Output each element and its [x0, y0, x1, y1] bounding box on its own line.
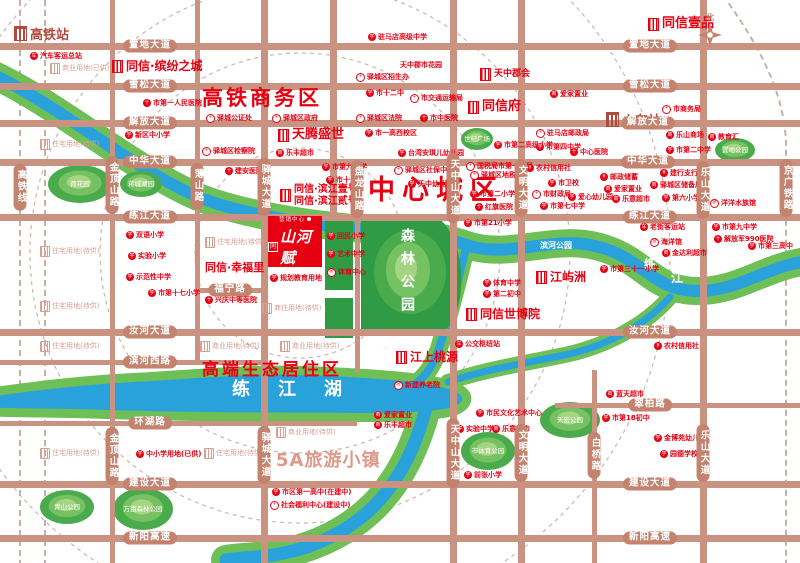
landmark-label: 江上桃源	[396, 351, 458, 365]
poi-label: +市商务局	[662, 105, 701, 114]
shop-icon: 商	[666, 131, 674, 139]
poi-label: +驿城区检察院	[202, 147, 255, 156]
road-capsule: 天中山大道	[447, 418, 460, 488]
school-icon: 学	[712, 223, 720, 231]
road-capsule: 解放大道	[123, 117, 177, 130]
road-capsule: 薄山路	[191, 163, 204, 210]
poi-label: 十市中医院	[420, 114, 458, 122]
poi-label: +驿城区法院	[356, 114, 402, 123]
school-icon: 学	[568, 193, 576, 201]
poi-label: 学市第三高中	[748, 242, 793, 250]
poi-label: +市财政局	[532, 190, 571, 199]
shop-icon: 商	[550, 90, 558, 98]
landmark-label: 同信·缤纷之城	[112, 60, 203, 74]
attraction-icon: 游	[394, 381, 403, 390]
poi-label: 商住用地(待供)	[262, 303, 321, 314]
poi-label: 住宅用地(待供)	[205, 237, 264, 248]
school-icon: 学	[654, 434, 662, 442]
region-label: 河	[711, 259, 723, 271]
poi-label: 学回民小学	[327, 232, 365, 240]
road-capsule: 建设大道	[623, 478, 677, 491]
poi-label: 学规划教育用地	[270, 274, 322, 282]
poi-label: 商蓝天超市	[606, 390, 644, 398]
land-parcel-icon	[262, 303, 272, 314]
road-capsule: 置地大道	[123, 40, 177, 53]
poi-label: 学市第21小学	[464, 219, 512, 227]
poi-label: 商业用地(待供)	[280, 341, 339, 352]
poi-label: 车汽车客运总站	[30, 52, 82, 60]
road-capsule: 汝河大道	[623, 326, 677, 339]
school-icon: 学	[366, 89, 374, 97]
poi-label: 学艺术中学	[327, 250, 365, 258]
road-capsule: 中华大道	[123, 156, 177, 169]
poi-label: 学中小学用地(已供)	[136, 450, 201, 458]
poi-label: 商乐丰超市	[374, 421, 412, 429]
map-label-layer: 荷花园蒋城湖园世纪广场置地公园天宏公园市体育公园青山公园万亩森林公园置地大道置地…	[0, 0, 800, 563]
government-icon: +	[662, 105, 671, 114]
poi-label: 商金达利超市	[662, 249, 707, 257]
poi-label: +驿城区政府	[272, 114, 318, 123]
school-icon: 学	[483, 290, 491, 298]
poi-label: ¥农村信用社	[654, 342, 699, 350]
region-label: 滨河公园	[540, 242, 572, 250]
poi-label: 车公交枢纽站	[455, 340, 500, 348]
poi-label: 十中心医院	[570, 148, 608, 156]
school-icon: 学	[368, 33, 376, 41]
landmark-label: 同信府	[468, 100, 521, 115]
road-capsule: 乐山大道	[697, 161, 710, 219]
landmark-label: 同信·幸福里	[205, 262, 264, 275]
poi-label: +驿城公证处	[206, 114, 252, 123]
road-capsule: 解放大道	[621, 117, 675, 130]
building-icon	[648, 18, 659, 31]
road-capsule: 环湖路	[128, 417, 172, 430]
road	[0, 214, 800, 221]
school-icon: 学	[470, 190, 478, 198]
school-icon: 学	[660, 450, 668, 458]
government-icon: +	[206, 114, 215, 123]
land-parcel-icon	[40, 301, 50, 312]
shop-icon: 商	[650, 181, 658, 189]
government-icon: +	[356, 73, 365, 82]
road-capsule: 新阳高速	[123, 532, 177, 545]
school-icon: 学	[536, 143, 544, 151]
school-icon: 学	[365, 129, 373, 137]
park-label: 万亩森林公园	[124, 506, 163, 513]
road-capsule: 中华大道	[621, 156, 675, 169]
school-icon: 学	[326, 176, 334, 184]
school-icon: 学	[464, 471, 472, 479]
poi-label: 学市第十七小学	[148, 289, 200, 297]
school-icon: 学	[327, 232, 335, 240]
railway-capsule: 京广铁路	[780, 159, 793, 217]
government-icon: +	[410, 94, 419, 103]
poi-label: 学市十二中	[366, 89, 404, 97]
poi-label: 商驿城区储备局	[650, 181, 702, 189]
school-icon: 学	[494, 141, 502, 149]
government-icon: +	[356, 114, 365, 123]
shop-icon: 商	[374, 411, 382, 419]
school-icon: 学	[540, 202, 548, 210]
road-capsule: 盘龙山路	[351, 160, 364, 218]
region-label: 森林公园	[400, 228, 414, 320]
government-icon: +	[202, 147, 211, 156]
park-label: 市体育公园	[472, 448, 505, 455]
poi-label: 商乐丰超市	[276, 149, 314, 157]
road	[0, 535, 800, 542]
road	[0, 421, 357, 426]
poi-label: 学市第七中学	[540, 202, 585, 210]
poi-label: 学市第九中学	[712, 223, 757, 231]
brand-seal-icon: 同	[268, 242, 278, 252]
poi-label: 学市民文化艺术中心	[476, 409, 542, 417]
poi-label: 学市区第一高中(在建中)	[272, 488, 351, 496]
road-capsule: 金顶山路	[106, 156, 119, 214]
bus-icon: 车	[30, 52, 38, 60]
school-icon: 学	[148, 289, 156, 297]
poi-label: +驿城区招生办	[356, 73, 409, 82]
building-icon	[396, 351, 407, 364]
school-icon: 学	[272, 488, 280, 496]
road-capsule: 乐山大道	[697, 424, 710, 482]
government-icon: +	[270, 501, 279, 510]
poi-label: 商业用地(已供)	[50, 63, 109, 74]
school-icon: 学	[126, 273, 134, 281]
station-icon	[606, 112, 619, 127]
poi-label: 游新建养老院	[394, 381, 440, 390]
park-label: 荷花园	[70, 181, 90, 188]
school-icon: 学	[327, 250, 335, 258]
school-icon: 学	[483, 279, 491, 287]
brand-logo: 山河赋	[280, 226, 322, 268]
poi-label: 商爱家置业	[604, 185, 642, 193]
poi-label: 住宅用地(待供)	[204, 448, 263, 459]
building-icon	[536, 271, 547, 284]
poi-label: 商教育汇	[708, 133, 739, 141]
poi-label: 住宅用地(待供)	[40, 139, 99, 150]
shop-icon: 商	[276, 149, 284, 157]
school-icon: 学	[548, 179, 556, 187]
shop-icon: 商	[662, 249, 670, 257]
park-label: 世纪广场	[464, 136, 490, 143]
poi-label: 十兴庆中等医院	[205, 296, 257, 304]
building-icon	[480, 68, 491, 81]
road-capsule: 新阳高速	[623, 532, 677, 545]
building-icon	[278, 129, 289, 142]
road-capsule: 建设大道	[123, 478, 177, 491]
hospital-icon: 十	[225, 167, 233, 175]
hospital-icon: 十	[420, 114, 428, 122]
shop-icon: 商	[492, 425, 500, 433]
bus-icon: 车	[640, 223, 648, 231]
road	[0, 481, 800, 488]
poi-label: 商业用地(待供)	[276, 427, 335, 438]
land-parcel-icon	[205, 237, 215, 248]
attraction-icon: 游	[327, 268, 336, 277]
poi-label: 学市第18初中	[602, 414, 650, 422]
school-icon: 学	[662, 194, 670, 202]
land-parcel-icon	[204, 448, 214, 459]
landmark-label: 天中郡会	[480, 68, 530, 81]
road-capsule: 雪松大道	[623, 80, 677, 93]
road	[0, 43, 800, 50]
road-capsule: 置地大道	[623, 40, 677, 53]
shop-icon: 商	[708, 133, 716, 141]
land-parcel-icon	[200, 341, 210, 352]
road-capsule: 白桥路	[588, 432, 601, 479]
poi-label: 车老街客运站	[640, 223, 685, 231]
north-label: 北	[706, 12, 714, 23]
poi-label: 商乐意超市	[612, 195, 650, 203]
road-capsule: 翠柏路	[628, 399, 672, 412]
poi-label: 住宅用地(待供)	[40, 448, 99, 459]
poi-label: +驻马店邮政局	[536, 129, 589, 138]
government-icon: +	[272, 114, 281, 123]
marketing-center-label: 营销中心	[279, 215, 311, 223]
school-icon: 学	[128, 252, 136, 260]
poi-label: 学新区中小学	[125, 131, 170, 139]
poi-label: 学市一高西校区	[365, 129, 417, 137]
compass: 北	[698, 12, 722, 47]
region-label: 高铁商务区	[202, 88, 322, 109]
project-brand-block: 营销中心 同 山河赋	[268, 216, 322, 267]
government-icon: +	[532, 190, 541, 199]
road	[0, 329, 800, 336]
school-icon: 学	[125, 131, 133, 139]
road-capsule: 金顶山路	[106, 427, 119, 485]
bank-icon: ¥	[654, 342, 662, 350]
school-icon: 学	[270, 274, 278, 282]
bus-icon: 车	[455, 340, 463, 348]
station-label: 高铁站	[14, 24, 69, 43]
map-canvas: 荷花园蒋城湖园世纪广场置地公园天宏公园市体育公园青山公园万亩森林公园置地大道置地…	[0, 0, 800, 563]
park-label: 青山公园	[54, 504, 80, 511]
building-icon	[280, 189, 291, 202]
poi-label: 天中郡市花园	[400, 62, 442, 69]
hospital-icon: 十	[570, 148, 578, 156]
railway-capsule: 高铁线	[14, 164, 27, 211]
park-label: 蒋城湖园	[128, 181, 154, 188]
poi-label: 游体育中心	[327, 268, 366, 277]
poi-label: +市交通运输局	[410, 94, 463, 103]
landmark-label: 同信·滨江壹号 同信·滨江贰号	[280, 184, 358, 207]
station-icon	[14, 26, 27, 41]
road-capsule: 汝河大道	[123, 326, 177, 339]
park-label: 置地公园	[722, 147, 748, 154]
poi-label: 学实验中学	[456, 425, 494, 433]
government-icon: +	[394, 166, 403, 175]
school-icon: 学	[126, 231, 134, 239]
poi-label: ¥邮政储蓄	[600, 173, 638, 181]
region-label: 江	[671, 272, 683, 284]
poi-label: 学市第三十一小学	[600, 265, 659, 273]
road-capsule: 文明大道	[515, 424, 528, 482]
road-capsule: 滨河西路	[123, 356, 177, 369]
shop-icon: 商	[612, 195, 620, 203]
school-icon: 学	[136, 450, 144, 458]
road-capsule: 福宁路	[208, 284, 252, 297]
poi-label: 十市第一人民医院	[143, 99, 202, 107]
poi-label: 商爱家置业	[374, 411, 412, 419]
land-parcel-icon	[40, 139, 50, 150]
land-parcel-icon	[276, 427, 286, 438]
school-icon: 学	[602, 414, 610, 422]
hospital-icon: 十	[143, 99, 151, 107]
poi-label: ¥农村信用社	[526, 164, 571, 172]
compass-star-icon	[698, 23, 722, 47]
poi-label: 商业用地(待供)	[200, 341, 259, 352]
poi-label: 商爱家置业	[550, 90, 588, 98]
region-label: 5A旅游小镇	[276, 452, 380, 470]
landmark-label: 天腾盛世	[278, 128, 344, 143]
landmark-label: 江屿洲	[536, 271, 586, 285]
road-capsule: 练江大道	[123, 211, 177, 224]
school-icon: 学	[408, 180, 416, 188]
poi-label: 学市第二中学	[666, 146, 711, 154]
poi-label: 学示范性中学	[126, 273, 171, 281]
hospital-icon: 十	[714, 235, 722, 243]
poi-label: +社会福利中心(建设中)	[270, 501, 350, 510]
poi-label: 学体育中学	[483, 279, 521, 287]
school-icon: 学	[464, 219, 472, 227]
poi-label: 学园德学校	[660, 450, 698, 458]
park-label: 天宏公园	[557, 417, 583, 424]
school-icon: 学	[398, 149, 406, 157]
bank-icon: ¥	[600, 173, 608, 181]
road-capsule: 驿城大道	[258, 158, 271, 216]
government-icon: +	[470, 171, 479, 180]
building-icon	[466, 308, 477, 321]
school-icon: 学	[322, 163, 330, 171]
poi-label: 学市卫校	[548, 179, 579, 187]
attraction-icon: 游	[710, 199, 719, 208]
school-icon: 学	[600, 265, 608, 273]
poi-label: 学第六小学	[662, 194, 700, 202]
poi-label: 住宅用地(待供)	[40, 341, 99, 352]
shop-icon: 商	[604, 185, 612, 193]
hospital-icon: 十	[205, 296, 213, 304]
shop-icon: 商	[374, 421, 382, 429]
school-icon: 学	[476, 409, 484, 417]
school-icon: 学	[666, 146, 674, 154]
region-label: 练江湖	[232, 381, 370, 399]
school-icon: 学	[748, 242, 756, 250]
road	[0, 159, 800, 166]
road-capsule: 练江大道	[623, 211, 677, 224]
poi-label: 学实验小学	[128, 252, 166, 260]
attraction-icon: 游	[650, 238, 659, 247]
government-icon: +	[536, 129, 545, 138]
poi-label: 学双语小学	[126, 231, 164, 239]
land-parcel-icon	[50, 63, 60, 74]
poi-label: 游洋洋水族馆	[710, 199, 756, 208]
road-capsule: 天中山大道	[447, 153, 460, 223]
land-parcel-icon	[40, 246, 50, 257]
poi-label: 学爱心幼儿园	[568, 193, 613, 201]
poi-label: 游海洋馆	[650, 238, 682, 247]
road-capsule: 驿城大道	[258, 426, 271, 484]
poi-label: 学驻马店高级中学	[368, 33, 427, 41]
hospital-icon: 十	[475, 203, 483, 211]
shop-icon: 商	[606, 390, 614, 398]
poi-label: +驿城区社保中心	[394, 166, 454, 175]
road-capsule: 雪松大道	[123, 80, 177, 93]
poi-label: 商乐山商场	[666, 131, 704, 139]
poi-label: ¥建行支行	[660, 169, 698, 177]
land-parcel-icon	[40, 341, 50, 352]
bank-icon: ¥	[660, 169, 668, 177]
poi-label: 十红旗医院	[475, 203, 513, 211]
building-icon	[112, 60, 123, 73]
land-parcel-icon	[40, 448, 50, 459]
poi-label: 学市第二小学	[470, 190, 515, 198]
land-parcel-icon	[280, 341, 290, 352]
building-icon	[468, 101, 479, 114]
poi-label: 学第二初中	[483, 290, 521, 298]
landmark-label: 同信世博院	[466, 308, 540, 322]
poi-label: 学前张小学	[464, 471, 502, 479]
poi-label: 住宅用地(待供)	[40, 301, 99, 312]
poi-label: 住宅用地(待供)	[40, 246, 99, 257]
region-label: 高端生态居住区	[202, 362, 342, 379]
road-capsule: 文明大道	[515, 159, 528, 217]
government-icon: +	[466, 162, 475, 171]
